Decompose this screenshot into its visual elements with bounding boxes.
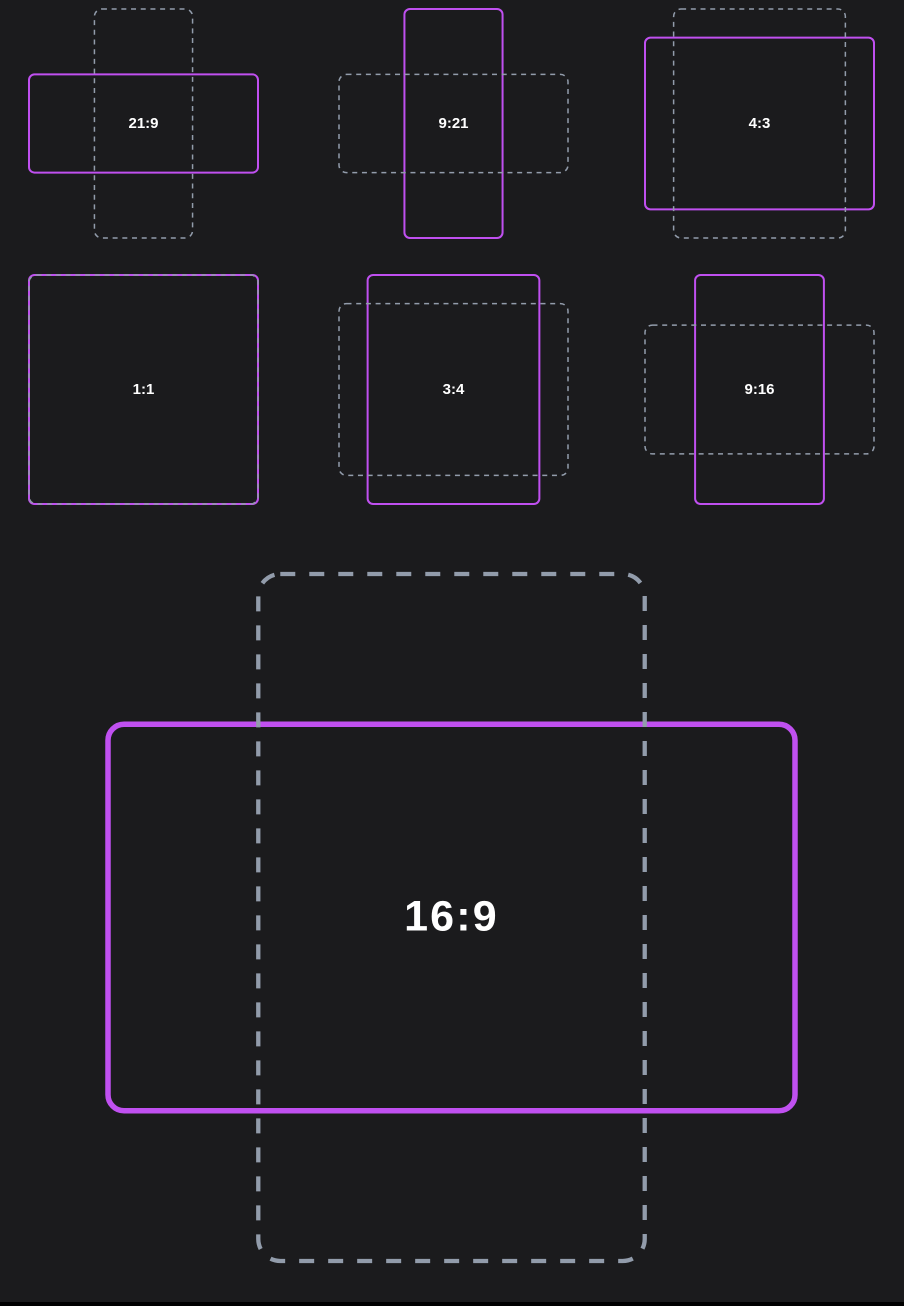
svg-text:1:1: 1:1: [133, 381, 155, 398]
svg-text:9:21: 9:21: [438, 115, 468, 132]
svg-text:4:3: 4:3: [749, 115, 771, 132]
svg-text:9:16: 9:16: [744, 381, 774, 398]
svg-text:16:9: 16:9: [404, 892, 499, 940]
svg-text:3:4: 3:4: [442, 381, 464, 398]
svg-text:21:9: 21:9: [128, 115, 158, 132]
